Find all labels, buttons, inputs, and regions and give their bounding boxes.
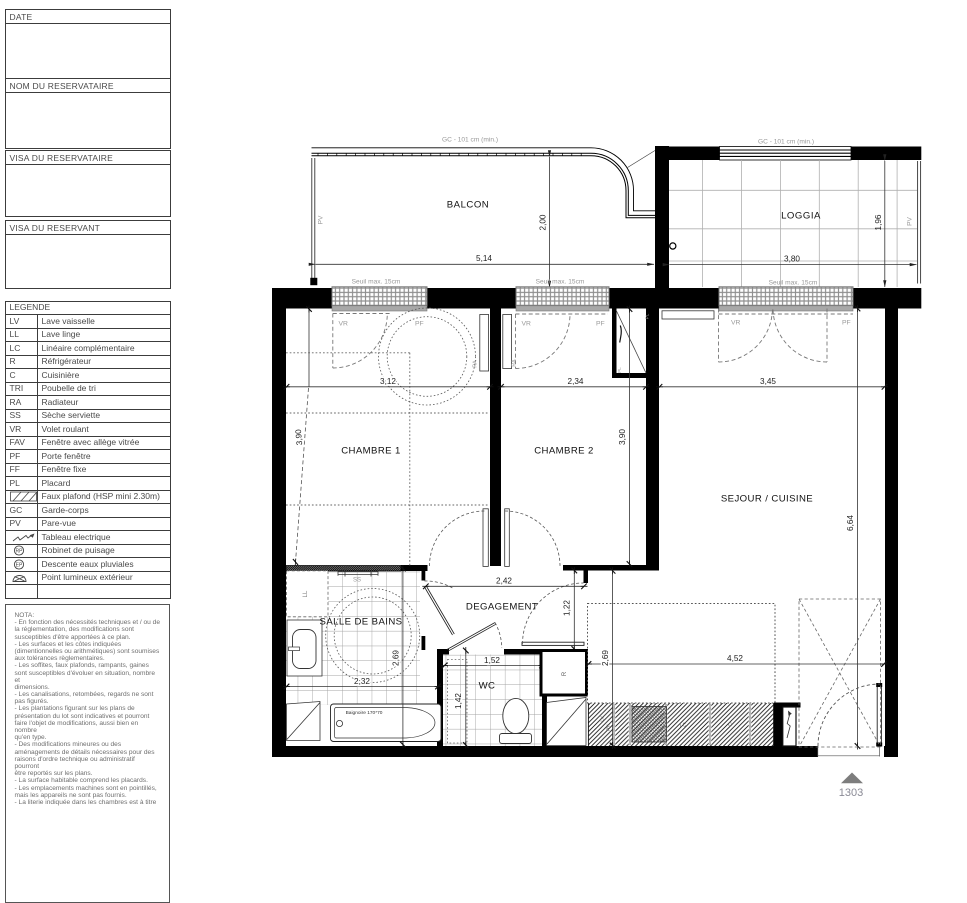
svg-text:6,64: 6,64 [846, 515, 855, 531]
svg-text:SS: SS [353, 578, 361, 584]
svg-text:3,90: 3,90 [618, 429, 627, 445]
svg-text:BALCON: BALCON [447, 200, 489, 211]
svg-text:PV: PV [318, 215, 325, 224]
svg-text:GC - 101 cm (min.): GC - 101 cm (min.) [442, 137, 498, 144]
svg-text:3,80: 3,80 [784, 255, 800, 264]
svg-text:2,69: 2,69 [601, 650, 610, 666]
svg-text:2,69: 2,69 [391, 650, 400, 666]
svg-text:SEJOUR / CUISINE: SEJOUR / CUISINE [721, 494, 813, 505]
svg-text:TRI: TRI [606, 724, 611, 731]
svg-text:CHAMBRE 1: CHAMBRE 1 [341, 446, 401, 457]
svg-text:PV: PV [907, 217, 914, 226]
svg-text:LV: LV [600, 716, 605, 721]
svg-text:3,12: 3,12 [380, 377, 396, 386]
svg-text:2,00: 2,00 [539, 214, 548, 230]
svg-text:R: R [562, 671, 568, 676]
svg-text:1303: 1303 [839, 787, 863, 799]
svg-text:2,32: 2,32 [354, 677, 370, 686]
svg-text:1,52: 1,52 [484, 656, 500, 665]
svg-text:PF: PF [842, 320, 851, 327]
svg-text:LL: LL [303, 590, 309, 597]
svg-text:VR: VR [339, 321, 349, 328]
svg-text:Seuil max. 15cm: Seuil max. 15cm [769, 280, 818, 287]
svg-text:1,96: 1,96 [874, 214, 883, 230]
svg-text:LOGGIA: LOGGIA [781, 211, 821, 222]
svg-text:5,14: 5,14 [476, 254, 492, 263]
svg-text:Seuil max. 15cm: Seuil max. 15cm [352, 279, 401, 286]
svg-text:Baignoire 170*70: Baignoire 170*70 [346, 710, 383, 716]
svg-text:DEGAGEMENT: DEGAGEMENT [466, 602, 538, 613]
svg-text:3,90: 3,90 [294, 428, 304, 445]
svg-text:VR: VR [731, 320, 741, 327]
svg-text:2,34: 2,34 [568, 377, 584, 386]
svg-text:SALLE DE BAINS: SALLE DE BAINS [320, 617, 403, 628]
svg-text:C: C [728, 723, 732, 729]
svg-text:PF: PF [596, 321, 605, 328]
svg-text:PL: PL [617, 367, 622, 373]
svg-text:CHAMBRE 2: CHAMBRE 2 [534, 446, 594, 457]
svg-text:RA: RA [512, 359, 518, 367]
svg-text:1,42: 1,42 [454, 693, 463, 709]
svg-text:WC: WC [479, 681, 496, 692]
svg-text:Seuil max. 15cm: Seuil max. 15cm [536, 279, 585, 286]
svg-text:PF: PF [415, 321, 424, 328]
svg-text:3,45: 3,45 [760, 377, 776, 386]
svg-text:PL: PL [645, 313, 650, 319]
svg-text:1,22: 1,22 [562, 600, 571, 616]
svg-text:VR: VR [522, 321, 532, 328]
svg-text:GC - 101 cm (min.): GC - 101 cm (min.) [758, 139, 814, 146]
svg-text:2,42: 2,42 [496, 577, 512, 586]
svg-text:4,52: 4,52 [727, 654, 743, 663]
svg-text:LC: LC [680, 723, 687, 729]
